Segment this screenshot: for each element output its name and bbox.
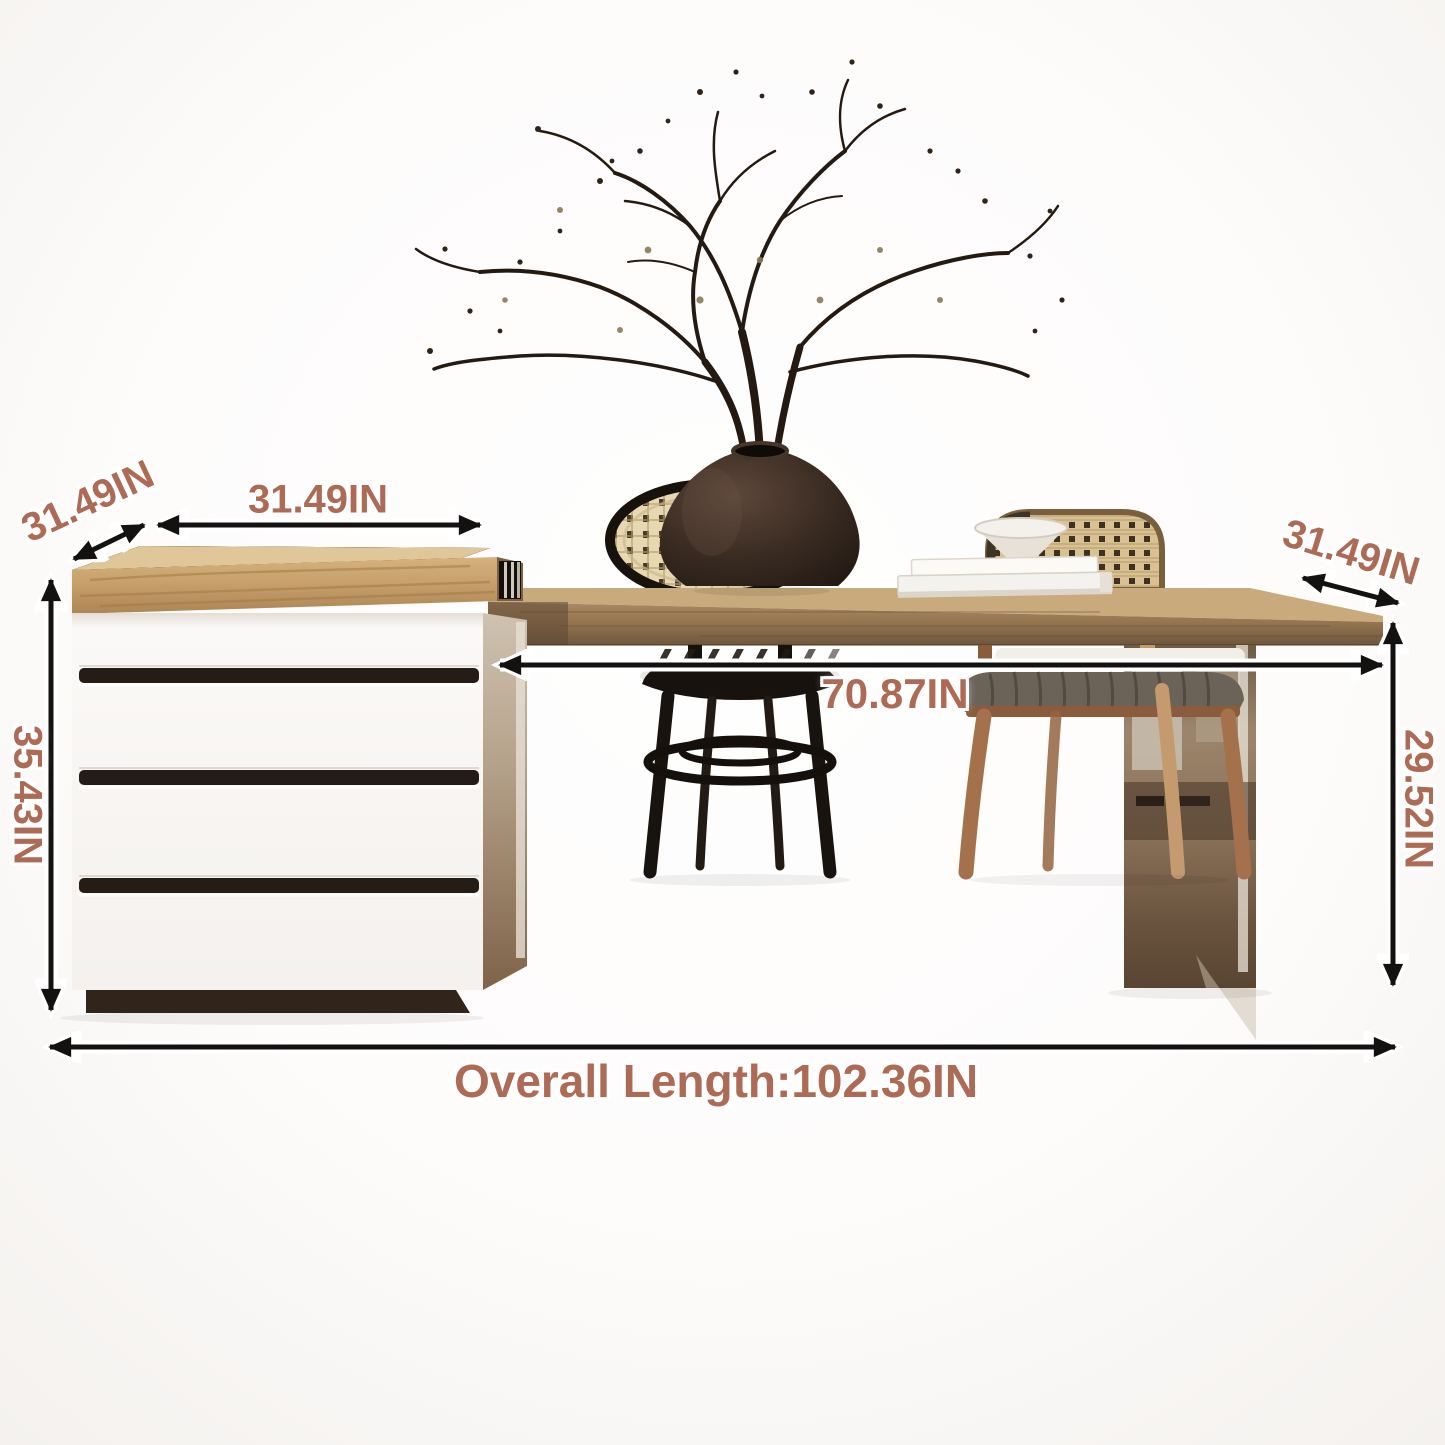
cabinet-height-label: 35.43IN: [5, 725, 50, 865]
chair-left: [630, 645, 850, 886]
books: [897, 556, 1112, 598]
table-length-label: 70.87IN: [821, 670, 968, 718]
scene-graphic: [0, 0, 1445, 1445]
cabinet-width-label: 31.49IN: [248, 478, 388, 523]
table-height-label: 29.52IN: [1396, 729, 1441, 869]
product-dimension-diagram: 31.49IN 31.49IN 31.49IN 70.87IN 35.43IN …: [0, 0, 1445, 1445]
branches: [416, 59, 1065, 458]
overall-length-label: Overall Length:102.36IN: [454, 1054, 978, 1108]
vase: [660, 443, 860, 596]
cabinet: [60, 546, 527, 1025]
